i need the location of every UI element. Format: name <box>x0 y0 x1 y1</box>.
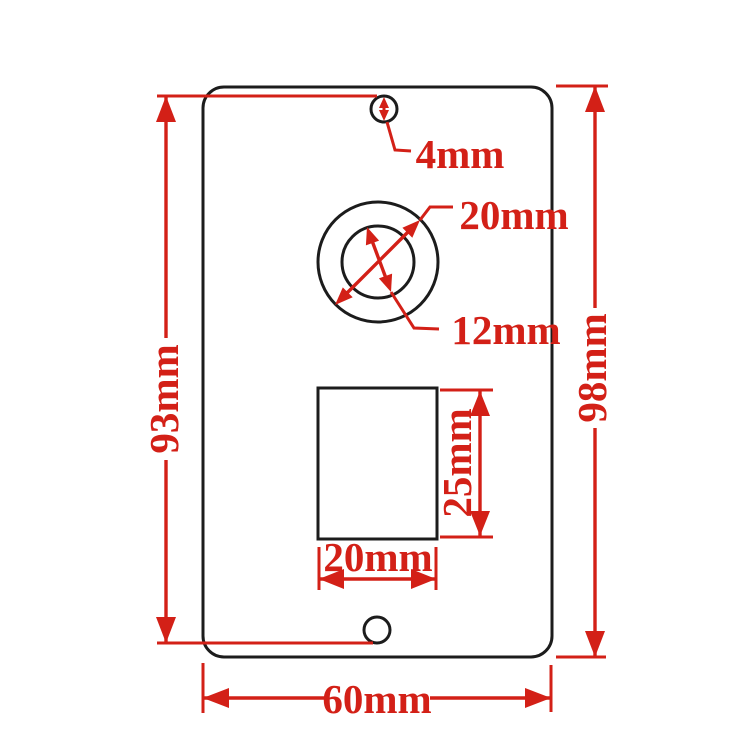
dim-label-ring-inner-diameter: 12mm <box>451 307 560 353</box>
arrowhead-left-icon <box>203 688 229 708</box>
arrowhead-up-icon <box>379 97 389 108</box>
dimension-98mm: 98mm <box>556 86 615 657</box>
dimension-20mm-slot: 20mm <box>319 534 436 590</box>
arrowhead-up-icon <box>585 86 605 112</box>
technical-drawing-canvas: 93mm 98mm 60mm <box>0 0 750 750</box>
bottom-mounting-hole <box>364 617 390 643</box>
arrowhead-down-icon <box>156 617 176 643</box>
leader-line-20-ring <box>420 207 453 220</box>
arrowhead-down-icon <box>379 110 389 121</box>
dim-line-20-ring <box>339 224 416 301</box>
dim-label-top-hole-diameter: 4mm <box>416 131 505 177</box>
leader-line-4mm <box>387 122 411 151</box>
dim-label-slot-width: 20mm <box>323 534 432 580</box>
dim-label-plate-height-right: 98mm <box>569 313 615 422</box>
arrowhead-up-icon <box>156 96 176 122</box>
arrowhead-up-left-icon <box>366 227 379 245</box>
rectangular-slot <box>318 388 437 539</box>
dim-label-slot-height: 25mm <box>434 408 480 517</box>
dimension-20mm-ring: 20mm <box>335 192 569 305</box>
dimension-25mm: 25mm <box>434 390 493 537</box>
dim-label-plate-width: 60mm <box>322 676 431 722</box>
dimension-diagram: 93mm 98mm 60mm <box>0 0 750 750</box>
arrowhead-down-right-icon <box>379 274 392 292</box>
dimension-60mm: 60mm <box>203 663 551 722</box>
dim-label-ring-outer-diameter: 20mm <box>459 192 568 238</box>
dim-label-plate-height-left: 93mm <box>141 344 187 453</box>
dim-line-12 <box>371 238 387 281</box>
arrowhead-down-icon <box>585 631 605 657</box>
arrowhead-right-icon <box>525 688 551 708</box>
